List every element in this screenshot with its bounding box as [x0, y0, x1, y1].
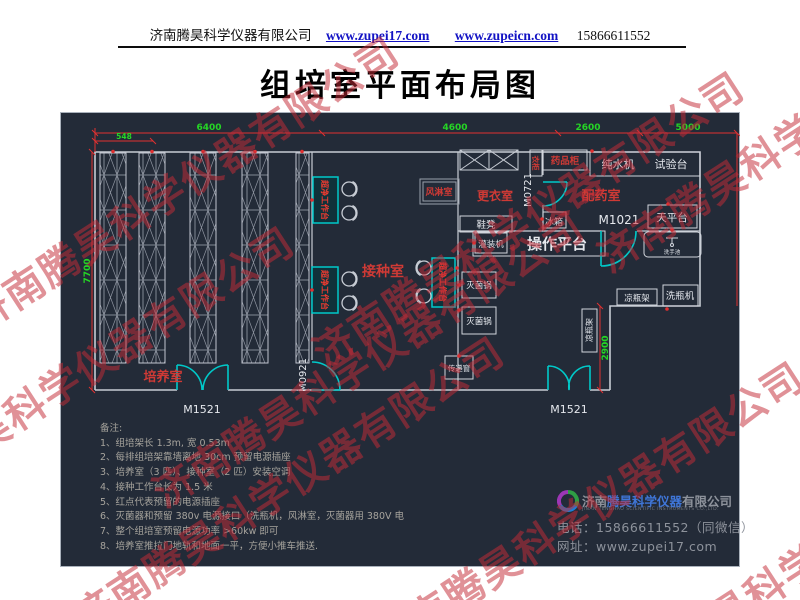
- transfer-window-label: 传递窗: [448, 363, 471, 373]
- note-item: 5、红点代表预留的电源插座: [100, 496, 540, 511]
- note-item: 1、组培架长 1.3m, 宽 0.53m: [100, 437, 540, 452]
- pure-water-label: 纯水机: [602, 157, 635, 171]
- door-label-m0721: M0721: [523, 173, 534, 207]
- note-item: 6、灭菌器和预留 380v 电源接口（洗瓶机，风淋室，灭菌器用 380V 电: [100, 510, 540, 525]
- page-title: 组培室平面布局图: [0, 60, 800, 105]
- notes-block: 备注: 1、组培架长 1.3m, 宽 0.53m 2、每排组培架靠墙离地 30c…: [100, 422, 540, 554]
- clean-bench-label: 超净工作台: [438, 261, 448, 302]
- footer-web-line: 网址：www.zupei17.com: [557, 536, 717, 555]
- header-divider: [118, 46, 686, 48]
- header-phone: 15866611552: [577, 28, 651, 43]
- fridge-label: 冰箱: [545, 216, 563, 228]
- svg-text:2600: 2600: [575, 123, 600, 133]
- culture-racks: [100, 153, 309, 363]
- footer-phone-line: 电话：15866611552（同微信）: [557, 517, 754, 536]
- wardrobe-label: 衣柜: [531, 156, 541, 171]
- page-header: 济南腾昊科学仪器有限公司 www.zupei17.com www.zupeicn…: [0, 24, 800, 44]
- web-label: 网址：: [557, 539, 596, 554]
- svg-text:5000: 5000: [675, 123, 700, 133]
- note-item: 8、培养室推拉门地轨和地面一平，方便小推车推送.: [100, 540, 540, 555]
- filling-machine-label: 灌装机: [478, 239, 504, 250]
- phone-value: 15866611552（同微信）: [596, 520, 754, 535]
- room-label-air-shower: 风淋室: [425, 186, 452, 198]
- svg-text:6400: 6400: [196, 123, 221, 133]
- note-item: 2、每排组培架靠墙离地 30cm 预留电源插座: [100, 451, 540, 466]
- phone-label: 电话：: [557, 520, 596, 535]
- note-item: 4、接种工作台长为 1.5 米: [100, 481, 540, 496]
- door-label-m1021: M1021: [599, 213, 640, 227]
- svg-text:4600: 4600: [442, 123, 467, 133]
- cool-rack-label: 凉瓶架: [624, 293, 650, 304]
- svg-text:548: 548: [116, 132, 132, 141]
- brand-logo-icon: [557, 490, 579, 512]
- room-label-changing: 更衣室: [477, 188, 513, 203]
- wash-basin-label: 洗手池: [664, 248, 681, 256]
- web-value[interactable]: www.zupei17.com: [596, 539, 717, 554]
- room-label-pharmacy: 配药室: [581, 188, 620, 204]
- brand-name-en: JINAN TENGHAO SCIENTIFIC INSTRUMENTS CO.…: [582, 507, 719, 512]
- header-link-zupei17[interactable]: www.zupei17.com: [326, 28, 430, 43]
- room-label-inoculation: 接种室: [362, 263, 404, 280]
- header-company: 济南腾昊科学仪器有限公司: [150, 28, 312, 43]
- locker-cabinet: [460, 150, 518, 170]
- medicine-cabinet-label: 药品柜: [551, 155, 580, 167]
- svg-text:7700: 7700: [83, 258, 93, 283]
- note-item: 3、培养室（3 匹）、接种室（2 匹）安装空调: [100, 466, 540, 481]
- dimension-lines: [89, 128, 740, 393]
- balance-label: 天平台: [656, 211, 688, 224]
- door-label-m1521: M1521: [550, 403, 588, 416]
- page: 济南腾昊科学仪器有限公司 www.zupei17.com www.zupeicn…: [0, 0, 800, 600]
- platform-label: 操作平台: [527, 235, 587, 253]
- svg-text:2900: 2900: [601, 335, 611, 360]
- sterilizer-label: 灭菌锅: [466, 316, 492, 327]
- test-bench-label: 试验台: [655, 157, 688, 171]
- door-label-m0921: M0921: [298, 358, 309, 392]
- chairs: [342, 182, 431, 311]
- notes-heading: 备注:: [100, 422, 540, 437]
- bottle-washer-label: 洗瓶机: [666, 290, 695, 302]
- room-label-culture: 培养室: [143, 369, 182, 385]
- door-label-m1521: M1521: [183, 403, 221, 416]
- header-link-zupeicn[interactable]: www.zupeicn.com: [455, 28, 559, 43]
- sterilizer-label: 灭菌锅: [466, 280, 492, 291]
- shoe-bench-label: 鞋凳: [476, 219, 496, 231]
- clean-bench-label: 超净工作台: [320, 269, 330, 310]
- note-item: 7、整个组培室预留电源功率 >60kw 即可: [100, 525, 540, 540]
- clean-bench-label: 超净工作台: [320, 179, 330, 220]
- cool-rack-vertical-label: 凉瓶架: [584, 318, 594, 342]
